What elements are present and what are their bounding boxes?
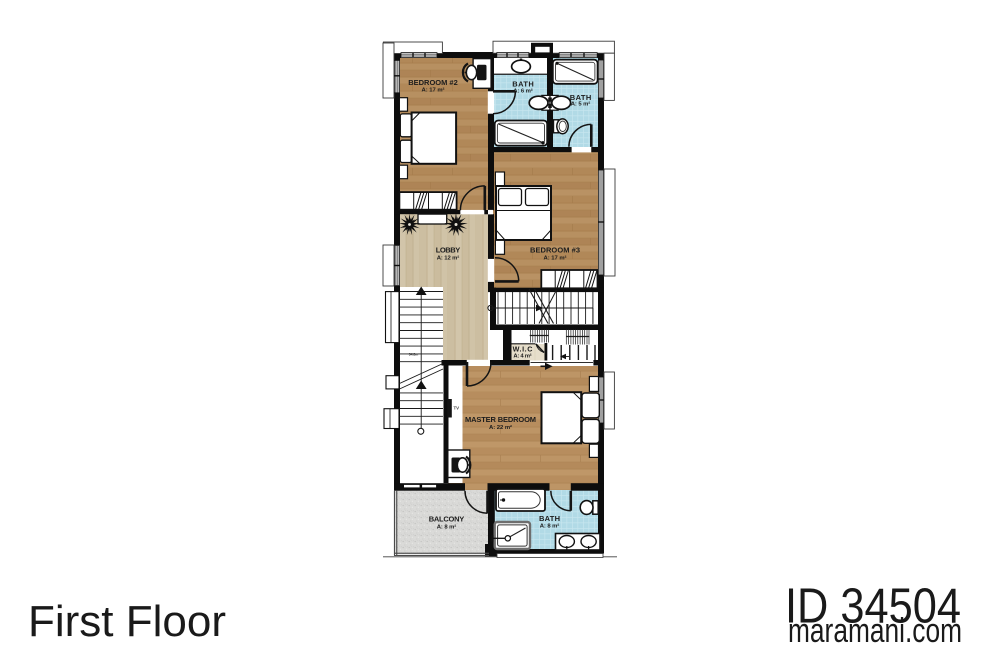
svg-text:34.8m: 34.8m bbox=[409, 352, 419, 356]
svg-text:LOBBY: LOBBY bbox=[436, 246, 461, 255]
svg-text:A: 5 m²: A: 5 m² bbox=[571, 101, 591, 108]
svg-text:BATH: BATH bbox=[539, 514, 560, 523]
svg-text:A: 8 m²: A: 8 m² bbox=[540, 523, 560, 530]
svg-text:TV: TV bbox=[454, 406, 460, 411]
svg-text:A: 4 m²: A: 4 m² bbox=[513, 353, 531, 360]
svg-text:A: 8 m²: A: 8 m² bbox=[437, 523, 457, 530]
svg-text:BEDROOM #3: BEDROOM #3 bbox=[530, 246, 580, 255]
svg-text:maramani.com: maramani.com bbox=[788, 612, 962, 650]
svg-text:First Floor: First Floor bbox=[28, 597, 226, 646]
svg-text:BEDROOM #2: BEDROOM #2 bbox=[408, 78, 458, 87]
svg-text:A: 17 m²: A: 17 m² bbox=[544, 255, 567, 262]
svg-text:BALCONY: BALCONY bbox=[429, 514, 465, 523]
svg-text:MASTER BEDROOM: MASTER BEDROOM bbox=[465, 415, 536, 424]
svg-text:A: 22 m²: A: 22 m² bbox=[489, 424, 512, 431]
svg-text:A: 6 m²: A: 6 m² bbox=[513, 88, 533, 95]
svg-text:BATH: BATH bbox=[512, 80, 534, 89]
svg-text:A: 12 m²: A: 12 m² bbox=[437, 255, 460, 262]
svg-text:A: 17 m²: A: 17 m² bbox=[422, 87, 445, 94]
svg-text:W.I.C: W.I.C bbox=[513, 344, 533, 353]
